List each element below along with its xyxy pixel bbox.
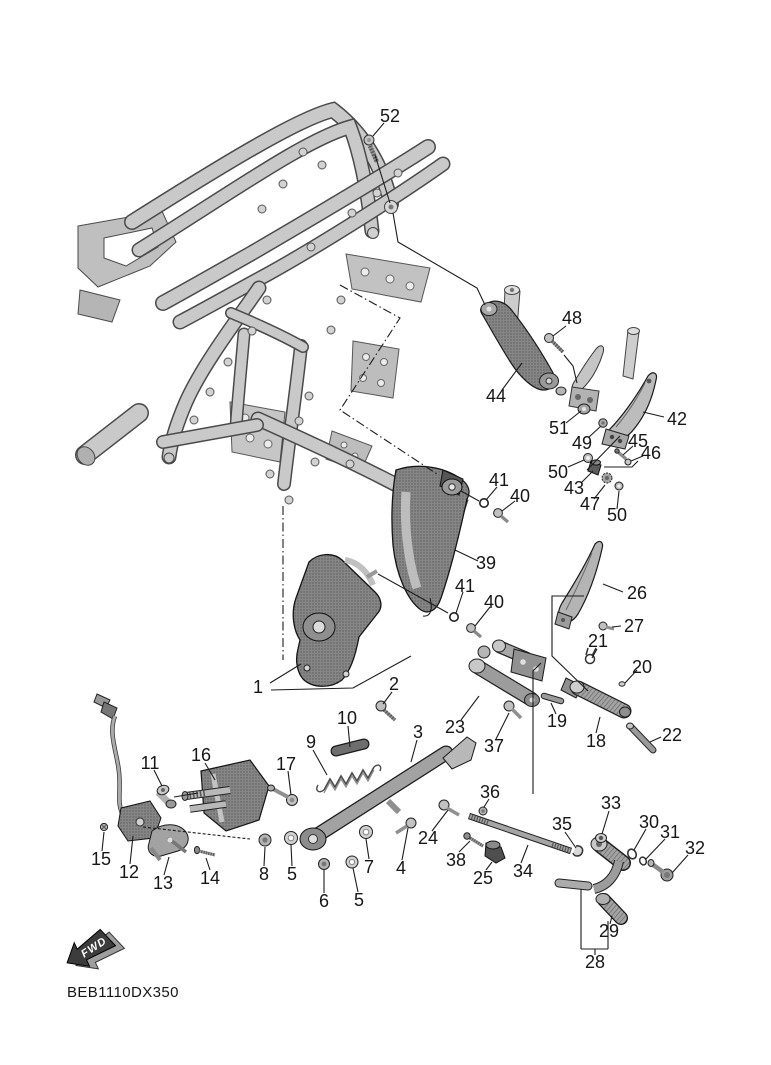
callout-41a: 41 bbox=[489, 470, 509, 490]
callout-6: 6 bbox=[319, 891, 329, 911]
callout-12: 12 bbox=[119, 862, 139, 882]
callout-44: 44 bbox=[486, 386, 506, 406]
callout-40a: 40 bbox=[510, 486, 530, 506]
callout-3: 3 bbox=[413, 722, 423, 742]
callout-8: 8 bbox=[259, 864, 269, 884]
callout-4: 4 bbox=[396, 858, 406, 878]
callout-49: 49 bbox=[572, 433, 592, 453]
callout-37: 37 bbox=[484, 736, 504, 756]
callout-13: 13 bbox=[153, 873, 173, 893]
heel-plate bbox=[555, 542, 614, 630]
callout-18: 18 bbox=[586, 731, 606, 751]
bolt-17 bbox=[268, 785, 298, 806]
callout-23: 23 bbox=[445, 717, 465, 737]
frame-illustration bbox=[73, 110, 468, 518]
callout-10: 10 bbox=[337, 708, 357, 728]
callout-25: 25 bbox=[473, 868, 493, 888]
bolt-24 bbox=[439, 800, 459, 815]
callout-50b: 50 bbox=[607, 505, 627, 525]
callout-5b: 5 bbox=[354, 890, 364, 910]
callout-9: 9 bbox=[306, 732, 316, 752]
callout-24: 24 bbox=[418, 828, 438, 848]
callout-46: 46 bbox=[641, 443, 661, 463]
side-stand-switch bbox=[94, 694, 215, 860]
callout-38: 38 bbox=[446, 850, 466, 870]
bolt-27 bbox=[599, 622, 614, 630]
callout-26: 26 bbox=[627, 583, 647, 603]
callout-20: 20 bbox=[632, 657, 652, 677]
callout-28: 28 bbox=[585, 952, 605, 972]
fwd-arrow: FWD bbox=[60, 922, 126, 982]
bolt-2 bbox=[376, 701, 395, 720]
callout-16: 16 bbox=[191, 745, 211, 765]
callout-33: 33 bbox=[601, 793, 621, 813]
parts-diagram-page: 5248444251494546504347504140394140262721… bbox=[0, 0, 771, 1065]
callout-5a: 5 bbox=[287, 864, 297, 884]
shift-linkage bbox=[450, 613, 561, 718]
callout-52: 52 bbox=[380, 106, 400, 126]
parts-diagram: 5248444251494546504347504140394140262721… bbox=[0, 0, 771, 1065]
callout-15: 15 bbox=[91, 849, 111, 869]
callout-34: 34 bbox=[513, 861, 533, 881]
callout-30: 30 bbox=[639, 812, 659, 832]
callout-32: 32 bbox=[685, 838, 705, 858]
callout-41b: 41 bbox=[455, 576, 475, 596]
callout-48: 48 bbox=[562, 308, 582, 328]
callout-1: 1 bbox=[253, 677, 263, 697]
callout-7: 7 bbox=[364, 857, 374, 877]
callout-42: 42 bbox=[667, 409, 687, 429]
callout-2: 2 bbox=[389, 674, 399, 694]
callout-27: 27 bbox=[624, 616, 644, 636]
callout-31: 31 bbox=[660, 822, 680, 842]
bolt-4 bbox=[396, 818, 416, 833]
callout-39: 39 bbox=[476, 553, 496, 573]
callout-17: 17 bbox=[276, 754, 296, 774]
bolt-37 bbox=[504, 701, 521, 718]
callout-11: 11 bbox=[141, 753, 160, 773]
callout-22: 22 bbox=[662, 725, 682, 745]
callout-36: 36 bbox=[480, 782, 500, 802]
callout-51: 51 bbox=[549, 418, 569, 438]
figure-code: BEB1110DX350 bbox=[67, 984, 179, 1001]
bolt-32 bbox=[648, 860, 673, 882]
callout-14: 14 bbox=[200, 868, 220, 888]
callout-29: 29 bbox=[599, 921, 619, 941]
bolt-48 bbox=[545, 334, 564, 353]
callout-40b: 40 bbox=[484, 592, 504, 612]
callout-47: 47 bbox=[580, 494, 600, 514]
callout-19: 19 bbox=[547, 711, 567, 731]
callout-21: 21 bbox=[588, 631, 608, 651]
callout-35: 35 bbox=[552, 814, 572, 834]
stand-bracket bbox=[293, 555, 395, 720]
